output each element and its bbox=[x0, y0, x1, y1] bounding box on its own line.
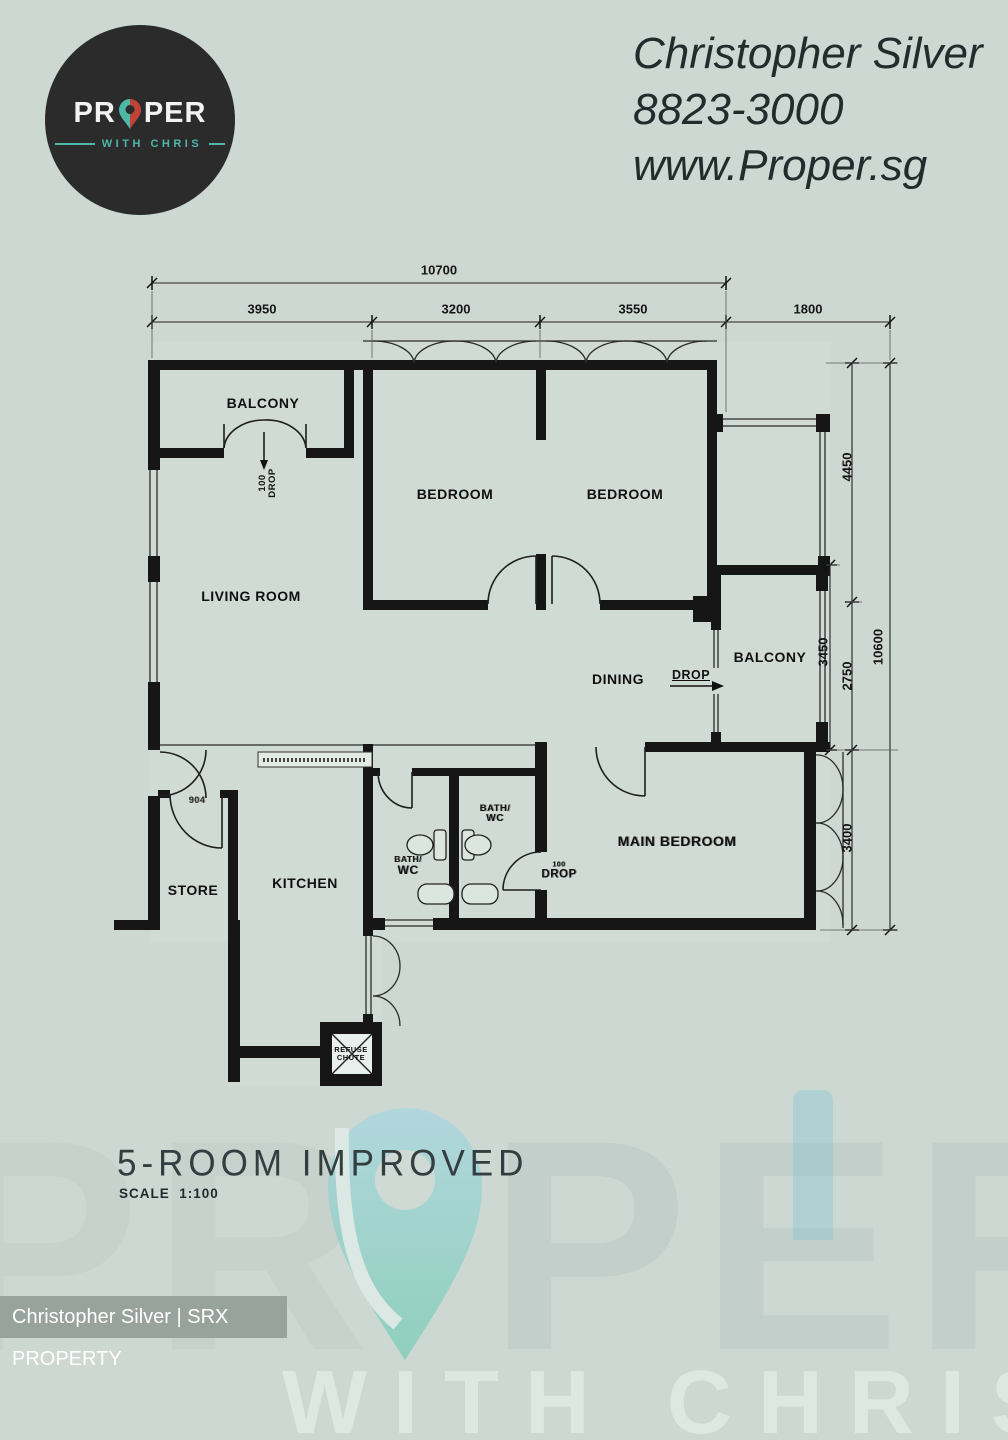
dim-height-2: 2750 bbox=[840, 662, 855, 691]
agent-phone: 8823-3000 bbox=[633, 82, 983, 138]
room-label-kitchen: KITCHEN bbox=[272, 875, 338, 891]
refuse-line2: CHUTE bbox=[334, 1054, 367, 1062]
entry-annotation: 904 bbox=[189, 795, 206, 805]
logo-underline-right bbox=[209, 143, 225, 145]
logo-wordmark-left: PR bbox=[74, 97, 116, 130]
logo-pin-icon bbox=[117, 97, 143, 131]
dim-height-1: 4450 bbox=[840, 453, 855, 482]
room-label-bath-1: BATH/ WC bbox=[394, 855, 422, 877]
floorplan-page: PR PER WITH CHRIS bbox=[0, 0, 1008, 1440]
dim-width-3: 3550 bbox=[619, 302, 648, 317]
plan-title: 5-ROOM IMPROVED bbox=[117, 1143, 528, 1185]
room-label-balcony-right: BALCONY bbox=[734, 649, 807, 665]
logo-wordmark-right: PER bbox=[144, 97, 207, 130]
room-label-bath-2: BATH/ WC bbox=[480, 804, 511, 824]
room-label-main-bedroom: MAIN BEDROOM bbox=[618, 833, 737, 849]
logo-tagline-row: WITH CHRIS bbox=[55, 138, 225, 150]
logo-underline-left bbox=[55, 143, 95, 145]
dim-width-2: 3200 bbox=[442, 302, 471, 317]
dim-width-1: 3950 bbox=[248, 302, 277, 317]
balcony-drop-label: 100 DROP bbox=[258, 468, 278, 497]
bedroom-drop-line2: DROP bbox=[541, 869, 576, 881]
dim-width-4: 1800 bbox=[794, 302, 823, 317]
room-floor-tint bbox=[150, 342, 830, 1086]
agent-info: Christopher Silver 8823-3000 www.Proper.… bbox=[633, 26, 983, 194]
bedroom-drop-label: 100 DROP bbox=[541, 861, 576, 880]
agent-website: www.Proper.sg bbox=[633, 138, 983, 194]
logo-wordmark: PR PER bbox=[74, 97, 207, 131]
agent-name: Christopher Silver bbox=[633, 26, 983, 82]
room-label-dining: DINING bbox=[592, 671, 644, 687]
bedroom-drop-line1: 100 bbox=[541, 861, 576, 868]
room-label-living: LIVING ROOM bbox=[201, 588, 301, 604]
bath-2-line2: WC bbox=[480, 814, 511, 825]
room-label-balcony-top: BALCONY bbox=[227, 395, 300, 411]
dim-total-width: 10700 bbox=[421, 263, 457, 278]
dining-drop-label: DROP bbox=[672, 668, 710, 682]
plan-scale: SCALE 1:100 bbox=[119, 1186, 219, 1201]
dim-total-height: 10600 bbox=[871, 629, 886, 665]
room-label-bedroom-1: BEDROOM bbox=[417, 486, 494, 502]
proper-logo: PR PER WITH CHRIS bbox=[45, 25, 235, 215]
dim-height-3: 3400 bbox=[840, 824, 855, 853]
refuse-chute-label: REFUSE CHUTE bbox=[334, 1046, 367, 1062]
balcony-drop-line2: DROP bbox=[268, 468, 278, 497]
room-label-store: STORE bbox=[168, 882, 218, 898]
logo-tagline: WITH CHRIS bbox=[102, 138, 202, 150]
credit-bar: Christopher Silver | SRX PROPERTY bbox=[0, 1296, 287, 1338]
bath-1-line2: WC bbox=[394, 864, 422, 877]
dim-height-balcony: 3450 bbox=[816, 638, 831, 667]
room-label-bedroom-2: BEDROOM bbox=[587, 486, 664, 502]
floorplan-svg bbox=[0, 0, 1008, 1440]
